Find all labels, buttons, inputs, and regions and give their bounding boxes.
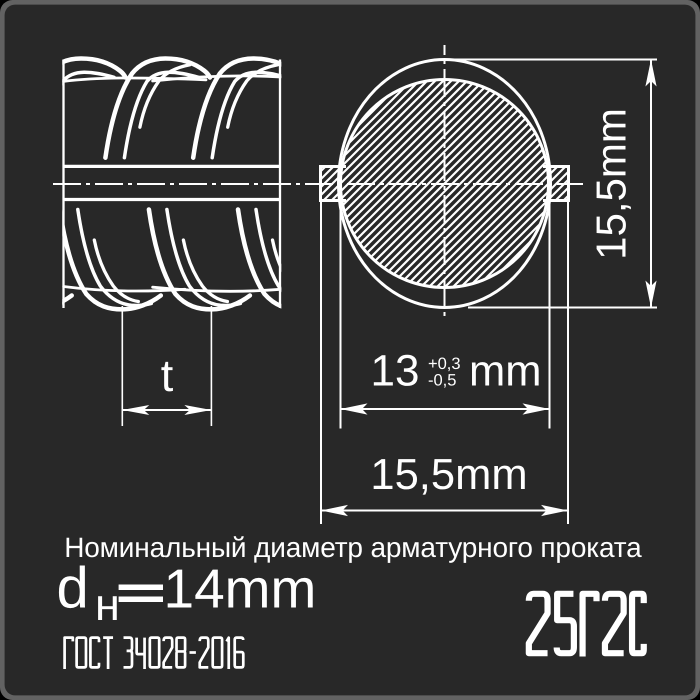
svg-text:Номинальный диаметр арматурног: Номинальный диаметр арматурного проката	[64, 532, 642, 563]
svg-text:15,5mm: 15,5mm	[588, 108, 635, 260]
svg-text:+0,3: +0,3	[428, 355, 461, 373]
svg-text:mm: mm	[469, 348, 541, 396]
svg-text:t: t	[161, 350, 174, 401]
svg-text:13: 13	[371, 347, 420, 396]
svg-text:-0,5: -0,5	[428, 372, 456, 390]
svg-text:14mm: 14mm	[164, 558, 317, 620]
svg-text:н: н	[95, 579, 120, 630]
svg-text:d: d	[57, 556, 89, 621]
svg-text:15,5mm: 15,5mm	[370, 451, 527, 499]
